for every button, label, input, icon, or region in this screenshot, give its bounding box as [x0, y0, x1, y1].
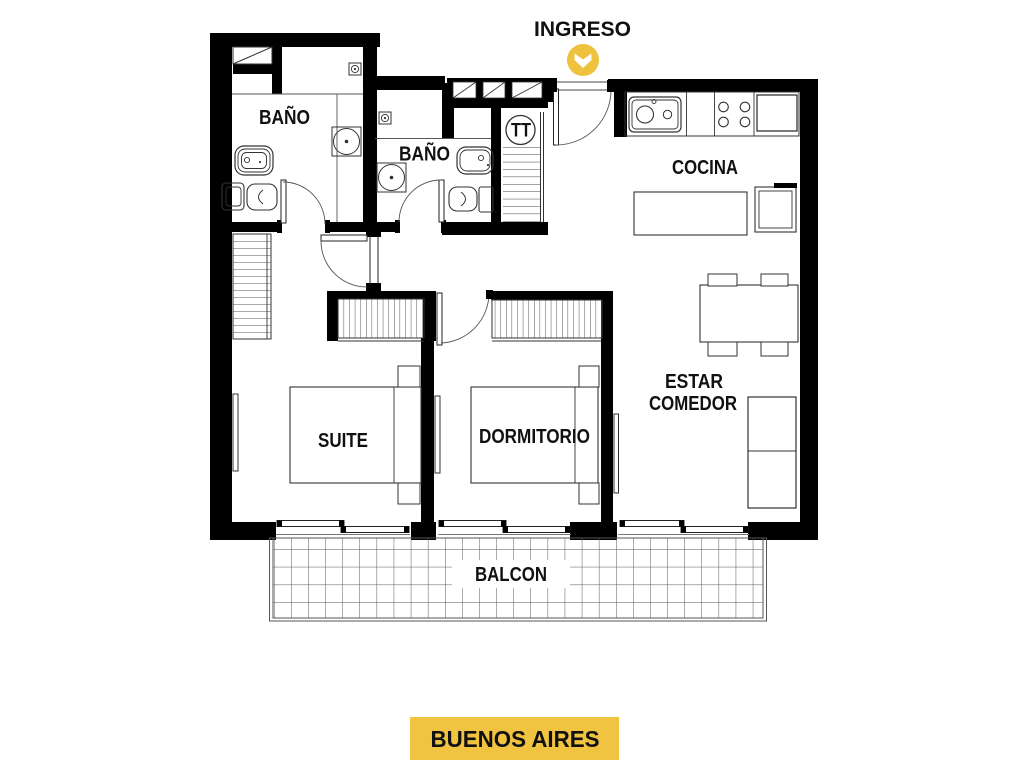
svg-text:ESTAR: ESTAR	[665, 371, 723, 393]
svg-text:COMEDOR: COMEDOR	[649, 393, 737, 415]
svg-text:COCINA: COCINA	[672, 157, 738, 179]
svg-text:SUITE: SUITE	[318, 430, 368, 452]
svg-text:BAÑO: BAÑO	[259, 106, 310, 129]
svg-text:INGRESO: INGRESO	[534, 18, 631, 41]
svg-text:DORMITORIO: DORMITORIO	[479, 426, 590, 448]
svg-text:BAÑO: BAÑO	[399, 143, 450, 166]
svg-text:BALCON: BALCON	[475, 564, 547, 586]
svg-text:BUENOS AIRES: BUENOS AIRES	[431, 726, 600, 752]
svg-text:TT: TT	[511, 121, 531, 142]
